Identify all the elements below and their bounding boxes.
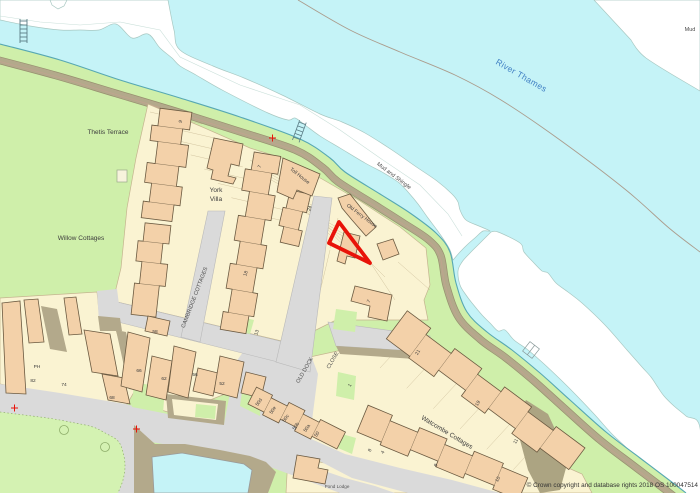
svg-text:© Crown copyright and database: © Crown copyright and database rights 20… (527, 481, 699, 489)
svg-text:62: 62 (161, 376, 167, 382)
svg-text:66: 66 (136, 368, 142, 374)
svg-text:74: 74 (61, 382, 67, 388)
svg-text:Thetis Terrace: Thetis Terrace (87, 129, 128, 136)
svg-text:Villa: Villa (210, 196, 223, 203)
svg-text:82: 82 (30, 378, 36, 384)
svg-text:68: 68 (109, 395, 115, 401)
svg-text:58: 58 (152, 329, 158, 335)
svg-text:52: 52 (219, 381, 225, 387)
svg-text:Mud: Mud (685, 27, 696, 33)
svg-text:Willow Cottages: Willow Cottages (58, 235, 105, 242)
svg-text:York: York (210, 187, 224, 194)
svg-text:PH: PH (34, 364, 41, 370)
svg-text:Pond Lodge: Pond Lodge (325, 484, 350, 489)
svg-text:56: 56 (192, 372, 198, 378)
